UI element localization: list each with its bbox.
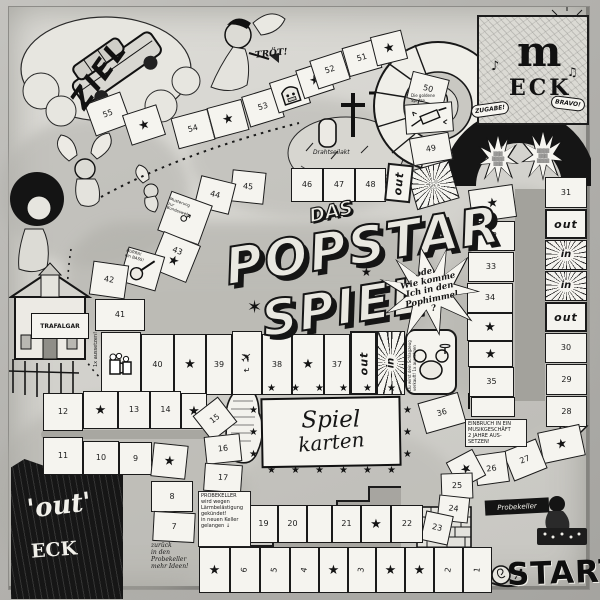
drumkit-icon [411, 340, 451, 384]
square-39: 39 [206, 334, 232, 395]
square-36: 36 [417, 392, 466, 434]
jail-event-square [471, 397, 515, 417]
square-19: 19 [249, 505, 278, 543]
star-square: ★ [150, 442, 188, 479]
square-28: 28 [546, 396, 587, 427]
square-6: 6 [230, 547, 260, 593]
square-20: 20 [278, 505, 307, 543]
star-icon: ★ [414, 564, 426, 577]
card-ring-star-icon: ★ [315, 465, 324, 476]
square-23: 23 [420, 510, 454, 545]
star-square: ★ [468, 341, 513, 367]
square-5: 5 [260, 547, 290, 593]
star-square: ★ [83, 391, 118, 429]
square-1: 1 [463, 547, 492, 593]
card-ring-star-icon: ★ [249, 449, 258, 460]
square-11: 11 [43, 437, 83, 475]
square-9: 9 [119, 442, 152, 475]
square-10: 10 [83, 441, 119, 475]
star-icon: ★ [136, 117, 151, 133]
card-ring-star-icon: ★ [387, 383, 396, 394]
star-icon: ★ [302, 358, 314, 371]
blank-square [307, 505, 332, 543]
card-ring-star-icon: ★ [291, 465, 300, 476]
star-square: ★ [122, 104, 166, 146]
card-ring-star-icon: ★ [267, 383, 276, 394]
out-square: out [384, 163, 414, 204]
square-12: 12 [43, 393, 83, 431]
star-square: ★ [537, 424, 586, 464]
square-46: 46 [291, 168, 323, 202]
star-square: ★ [199, 547, 230, 593]
star-icon: ★ [328, 564, 340, 577]
square-21: 21 [332, 505, 361, 543]
zurueck-note: zurück in den Probekeller mehr Ideen! [151, 543, 199, 571]
star-square: ★ [319, 547, 348, 593]
star-icon: ★ [209, 564, 221, 577]
star-icon: ★ [163, 454, 176, 468]
game-board: ▒▒▒▒▒▒▒▒▒▒ ▒▒▒▒▒▒▒▒▒▒▒ 55★54★53★5251★504… [8, 6, 590, 590]
square-16: 16 [204, 433, 243, 465]
card-ring-star-icon: ★ [315, 383, 324, 394]
star-square: ★ [174, 334, 206, 395]
spritze-note: Die goldene Spritze [409, 93, 453, 105]
card-ring-star-icon: ★ [339, 383, 348, 394]
star-square: ★ [405, 547, 434, 593]
in-square: in [545, 271, 587, 301]
square-14: 14 [150, 391, 181, 429]
square-30: 30 [545, 333, 587, 363]
card-area-label-2: karten [297, 427, 365, 457]
square-35: 35 [469, 367, 514, 397]
in-square: in [545, 240, 587, 270]
building-sign: TRAFALGAR [31, 313, 89, 339]
card-ring-star-icon: ★ [267, 465, 276, 476]
star-icon: ★ [95, 404, 107, 417]
einbruch-note: EINBRUCH IN EIN MUSIKGESCHÄFT 2 JAHRE AU… [465, 419, 527, 447]
syr-event-square [404, 101, 454, 134]
square-7: 7 [152, 511, 196, 543]
card-ring-star-icon: ★ [387, 465, 396, 476]
card-ring-star-icon: ★ [249, 427, 258, 438]
square-17: 17 [203, 463, 243, 494]
card-ring-star-icon: ★ [249, 405, 258, 416]
star-square: ★ [370, 30, 408, 67]
card-ring-star-icon: ★ [291, 383, 300, 394]
square-22: 22 [391, 505, 423, 543]
star-icon: ★ [370, 518, 382, 531]
popstar-game-board-photo: { "title": { "das": "DAS", "line1": "POP… [0, 0, 600, 600]
star-square: ★ [467, 313, 513, 341]
title-star-decor: ✶ [247, 297, 262, 318]
star-icon: ★ [385, 564, 397, 577]
title-star-decor: ★ [361, 265, 372, 279]
star-icon: ★ [484, 321, 496, 334]
plane-event-square: ✈↵ [232, 331, 262, 395]
card-area: Spiel karten [260, 396, 401, 468]
star-icon: ★ [382, 40, 396, 55]
airplane-icon: ✈ [238, 349, 256, 367]
star-square: ★ [376, 547, 405, 593]
square-48: 48 [355, 168, 386, 202]
square-8: 8 [151, 481, 193, 512]
square-13: 13 [118, 391, 150, 429]
square-34: 34 [467, 283, 513, 313]
out-square: out [545, 209, 587, 239]
card-ring-star-icon: ★ [363, 465, 372, 476]
start-label: START [506, 553, 600, 593]
probekeller-gekuendigt-note: PROBEKELLER wird wegen Lärmbelästigung g… [198, 491, 251, 547]
card-ring-star-icon: ★ [403, 405, 412, 416]
star-icon: ★ [485, 348, 497, 361]
square-3: 3 [348, 547, 376, 593]
square-4: 4 [290, 547, 319, 593]
card-ring-star-icon: ★ [339, 465, 348, 476]
out-square: out [545, 302, 587, 332]
star-square: ★ [361, 505, 391, 543]
star-icon: ★ [184, 358, 196, 371]
star-icon: ★ [554, 436, 568, 451]
drahtseilakt-label: Drahtseilakt [313, 149, 350, 156]
card-ring-star-icon: ★ [403, 449, 412, 460]
square-42: 42 [89, 261, 129, 300]
building-penalty-note: 1x aussetzen! [93, 307, 99, 367]
square-31: 31 [545, 177, 587, 208]
square-40: 40 [141, 334, 174, 395]
square-2: 2 [434, 547, 463, 593]
card-ring-star-icon: ★ [363, 383, 372, 394]
square-29: 29 [546, 364, 587, 395]
golden-syringe-icon [408, 106, 449, 131]
schlagzeug-note: Du wirst dein Schlagzeug verkauft! 1x au… [407, 333, 417, 391]
star-icon: ★ [221, 111, 236, 127]
card-ring-star-icon: ★ [403, 427, 412, 438]
square-41: 41 [95, 299, 145, 331]
beer-event-square [101, 332, 141, 395]
